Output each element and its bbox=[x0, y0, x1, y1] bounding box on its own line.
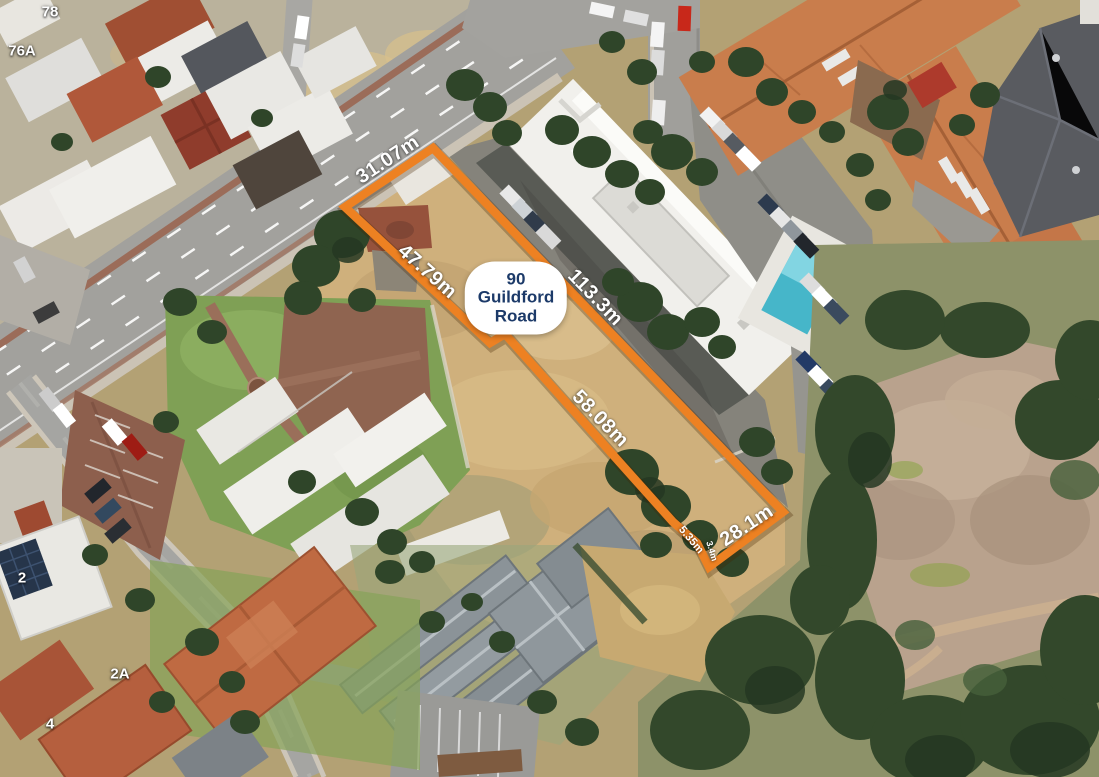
satellite-imagery bbox=[0, 0, 1099, 777]
aerial-map: 31.07m 47.79m 113.3m 58.08m 5.35m 3.4m 2… bbox=[0, 0, 1099, 777]
